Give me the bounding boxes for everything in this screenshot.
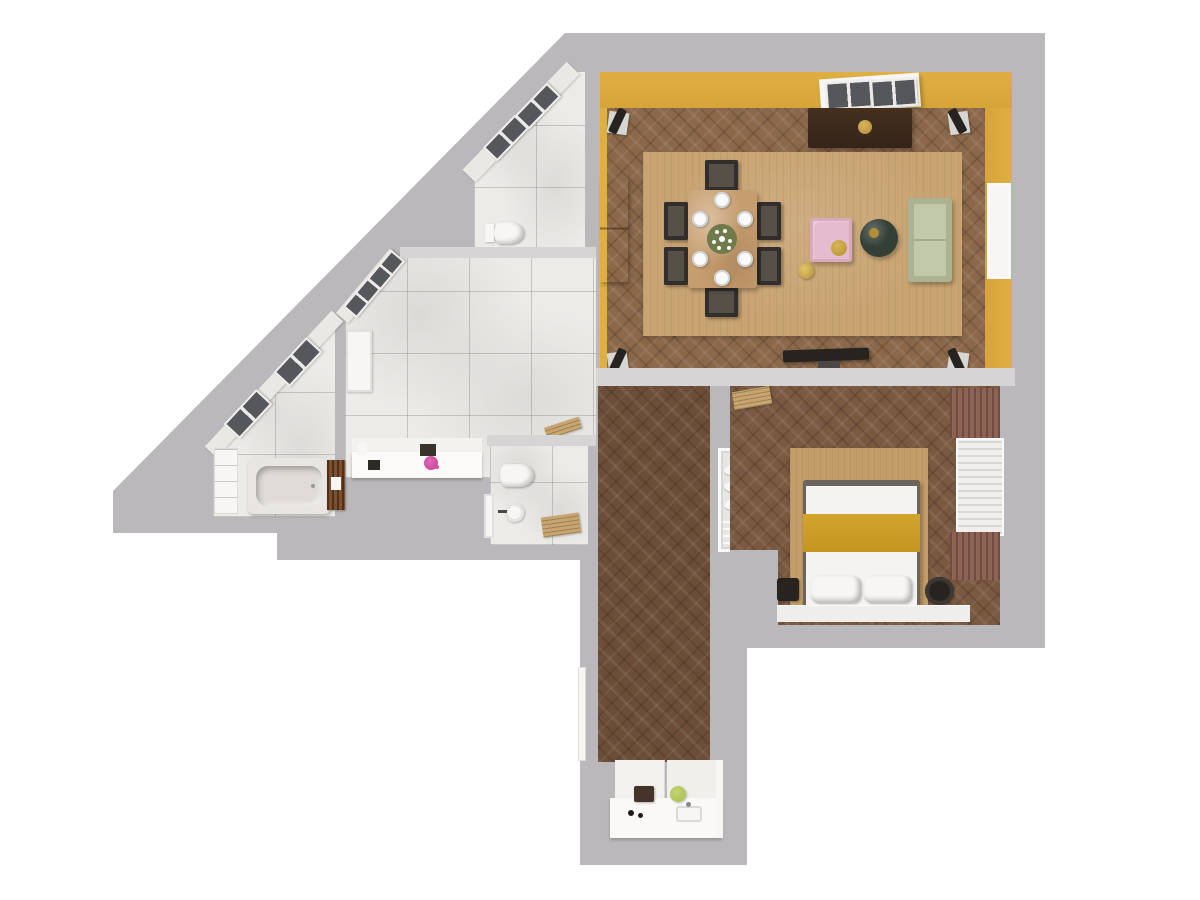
bed-pillow <box>864 576 912 603</box>
floor-plan <box>0 0 1200 900</box>
vanity-flowers <box>424 456 438 470</box>
pink-armchair <box>810 218 852 262</box>
wall-bathroom-top <box>400 247 596 258</box>
bedroom-wall-chunk <box>730 550 778 625</box>
kitchen-sink <box>676 806 702 822</box>
bedroom-window-blinds <box>956 438 1004 536</box>
wc-small-door <box>484 494 494 538</box>
hob-knob <box>638 813 643 818</box>
toilet-tank <box>485 224 494 242</box>
dining-chair <box>705 160 738 191</box>
place-setting-plate <box>714 270 730 286</box>
toilet-bowl <box>500 464 534 487</box>
bathroom-door <box>346 330 372 392</box>
fruit-bowl <box>670 786 686 802</box>
vanity-dispenser <box>368 460 380 470</box>
coffee-table <box>860 219 898 257</box>
dining-chair <box>664 202 688 240</box>
place-setting-plate <box>737 251 753 267</box>
towel-on-ladder <box>331 477 341 490</box>
washbasin-faucet <box>498 510 507 513</box>
vanity-backsplash <box>352 438 482 452</box>
vanity-soap-tray <box>420 444 436 456</box>
place-setting-plate <box>737 211 753 227</box>
dining-chair <box>757 247 781 285</box>
terracotta-cabinet <box>600 175 628 282</box>
nightstand-right <box>925 577 954 605</box>
bathtub-drain <box>311 484 315 488</box>
sofa-seat-cushions <box>914 204 946 276</box>
coffee-table-gold-bowl <box>869 228 879 238</box>
flower-centerpiece-blooms <box>719 236 725 242</box>
toilet-bowl <box>494 222 524 244</box>
bedroom-window-sill <box>777 605 970 622</box>
dining-chair <box>705 287 738 317</box>
roof-skylight-glass <box>870 77 918 108</box>
hob-knob <box>628 810 634 816</box>
bed-throw-blanket <box>803 514 920 552</box>
armchair-gold-cushion <box>831 240 847 256</box>
kitchen-side-wall <box>716 760 723 838</box>
living-room-window-panes <box>991 188 1007 274</box>
living-room-wall-top <box>600 72 1012 108</box>
hallway-floor <box>598 386 710 762</box>
entry-door <box>578 667 586 761</box>
round-washbasin <box>505 503 524 522</box>
place-setting-plate <box>692 251 708 267</box>
kitchen-counter <box>610 798 722 838</box>
sink-faucet <box>686 802 691 807</box>
sideboard-gold-medallion <box>858 120 872 134</box>
dining-chair <box>664 247 688 285</box>
curtain-bottom <box>950 532 1000 580</box>
gold-floor-lamp <box>798 263 814 279</box>
cutting-board <box>634 786 654 802</box>
place-setting-plate <box>714 192 730 208</box>
nightstand-left <box>777 578 799 601</box>
curtain-top <box>950 388 1000 438</box>
dining-chair <box>757 202 781 240</box>
wall-living-south <box>596 368 1015 386</box>
roof-skylight-glass <box>825 79 873 110</box>
bed-pillow <box>811 576 861 603</box>
place-setting-plate <box>692 211 708 227</box>
wardrobe-panels <box>214 448 238 514</box>
wall-wc-small-top <box>487 435 596 446</box>
vanity-towel <box>357 443 367 455</box>
